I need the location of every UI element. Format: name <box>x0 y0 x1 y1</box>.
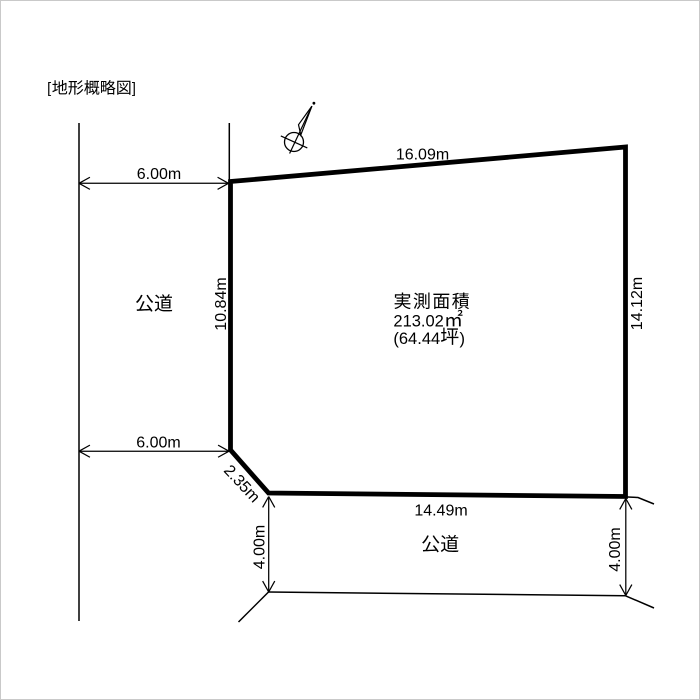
svg-text:6.00m: 6.00m <box>136 435 180 452</box>
svg-text:10.84m: 10.84m <box>213 277 230 330</box>
svg-text:6.00m: 6.00m <box>137 166 181 183</box>
svg-text:14.49m: 14.49m <box>414 503 467 520</box>
svg-text:4.00m: 4.00m <box>251 525 268 569</box>
svg-text:[: [ <box>47 81 51 97</box>
svg-text:): ) <box>460 330 466 348</box>
svg-text:16.09m: 16.09m <box>396 147 449 164</box>
svg-text:4.00m: 4.00m <box>607 527 624 571</box>
svg-text:14.12m: 14.12m <box>629 277 646 330</box>
svg-text:(64.44: (64.44 <box>393 330 440 348</box>
svg-text:]: ] <box>132 81 136 97</box>
svg-text:213.02: 213.02 <box>393 312 443 330</box>
